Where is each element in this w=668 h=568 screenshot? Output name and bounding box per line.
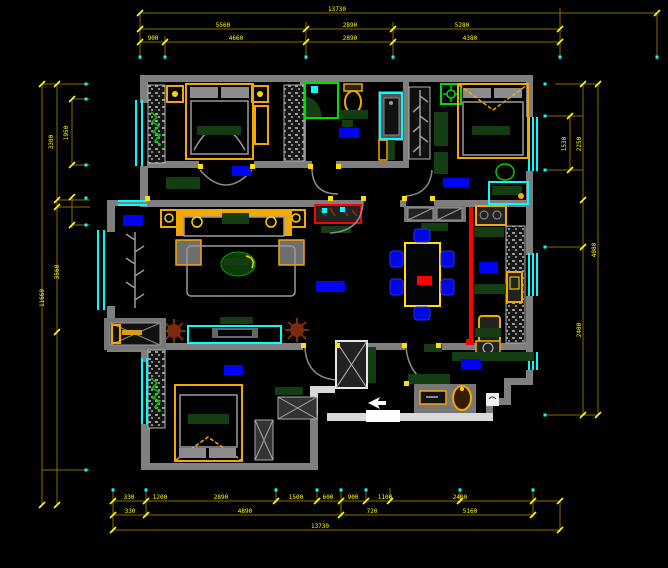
cabinet-green — [434, 112, 448, 146]
armchair-left — [176, 240, 201, 265]
bedroom-top-left — [148, 84, 268, 189]
dim-text: 720 — [367, 508, 378, 515]
cabinet-handle — [122, 330, 142, 335]
dim-text: 3560 — [54, 264, 61, 279]
floor-plan-drawing: 13730 5560 2890 5280 900 4660 2890 4380 … — [0, 0, 668, 568]
dim-text: 1530 — [561, 136, 568, 151]
toilet-icon — [345, 91, 361, 113]
sofa-swirl — [192, 217, 202, 227]
extension-dot — [544, 246, 547, 249]
counter — [474, 284, 506, 294]
door-hinge-dot — [404, 381, 409, 386]
blanket — [188, 414, 229, 424]
console-vase — [322, 208, 327, 213]
sofa-swirl — [266, 217, 276, 227]
extension-dot — [365, 489, 368, 492]
door-hinge-dot — [361, 196, 366, 201]
washer-column — [379, 140, 387, 160]
chair — [414, 307, 430, 320]
room-label-entry — [461, 359, 481, 369]
fan-hub — [447, 90, 455, 98]
chair — [414, 229, 430, 242]
room-label-kitchen — [479, 262, 498, 273]
dimension-lines-top: 13730 5560 2890 5280 900 4660 2890 4380 — [140, 6, 657, 60]
lamp-icon — [292, 214, 300, 222]
extension-dot — [139, 56, 142, 59]
dim-text: 900 — [148, 35, 159, 42]
extension-dot — [112, 489, 115, 492]
room-label-bathroom — [339, 128, 359, 138]
extension-dot — [305, 56, 308, 59]
chair — [441, 251, 454, 267]
tissue-box-icon — [486, 393, 499, 406]
sofa-arm — [284, 209, 292, 236]
bath-cabinet — [340, 110, 368, 119]
pillow — [221, 87, 249, 98]
window-kitchen-right — [529, 253, 537, 296]
room-label-bedroom2 — [443, 178, 469, 187]
desk-lamp-icon — [518, 193, 524, 199]
toilet-tank — [344, 84, 362, 91]
dim-text: 1500 — [289, 494, 304, 501]
dim-text: 600 — [323, 494, 334, 501]
bench — [408, 374, 450, 384]
pillow — [179, 448, 206, 458]
end-table-left — [161, 210, 178, 227]
wall-living-bottom — [150, 343, 303, 350]
cabinet-green — [434, 152, 448, 174]
dim-text: 13730 — [328, 6, 346, 13]
door-hinge-dot — [436, 343, 441, 348]
door-hinge-dot — [402, 196, 407, 201]
dim-text: 4890 — [238, 508, 253, 515]
dim-text: 3300 — [48, 134, 55, 149]
chair-icon — [496, 164, 514, 180]
chair — [390, 279, 403, 295]
wall-living-top — [147, 200, 307, 207]
dim-text: 13730 — [311, 523, 329, 530]
room-label-bedroom1 — [232, 166, 251, 176]
extension-dot — [532, 489, 535, 492]
room-label-hallway — [316, 281, 345, 292]
dim-text: 2250 — [576, 136, 583, 151]
pillow — [463, 88, 491, 98]
red-marker — [466, 339, 474, 345]
table-leaf — [224, 258, 250, 265]
north-arrow-icon — [368, 397, 386, 409]
tv-screen — [218, 330, 252, 336]
extension-dot — [544, 414, 547, 417]
knob — [260, 131, 263, 134]
extension-end-dots — [85, 56, 659, 492]
window-bedroom1-left — [136, 100, 142, 166]
lamp-icon — [165, 214, 173, 222]
table-centerpiece — [417, 276, 432, 285]
closet-hatch — [148, 350, 165, 428]
extension-dot — [544, 169, 547, 172]
blanket — [197, 126, 241, 135]
dim-text: 11660 — [39, 289, 46, 307]
pillow — [190, 87, 218, 98]
kitchen — [469, 206, 525, 343]
cabinet-green-strip — [368, 347, 376, 383]
wall-bedroom3-right — [310, 415, 318, 470]
door-arc-bedroom3 — [305, 348, 337, 380]
sofa-cushion — [222, 213, 249, 224]
dim-text: 2890 — [214, 494, 229, 501]
plant-brown-right — [285, 318, 309, 342]
window-living-bay — [98, 230, 104, 310]
window-bedroom3-left — [142, 358, 147, 424]
extension-dot — [544, 83, 547, 86]
extension-dot — [164, 56, 167, 59]
wall-hall-north — [336, 161, 406, 168]
dim-text: 1200 — [153, 494, 168, 501]
room-label-living — [123, 215, 143, 226]
dim-text: 2890 — [343, 22, 358, 29]
media-shelf — [220, 317, 253, 324]
wall-right — [526, 296, 533, 352]
extension-dot — [316, 489, 319, 492]
window-bedroom2-right — [529, 117, 537, 171]
extension-dot — [392, 56, 395, 59]
pillow — [209, 448, 236, 458]
wall-bedroom3-bottom — [141, 463, 318, 470]
door-hinge-dot — [328, 196, 333, 201]
console-vase — [340, 207, 345, 212]
door-hinge-dot — [198, 164, 203, 169]
extension-dot — [85, 197, 88, 200]
lamp-icon — [257, 91, 263, 97]
cad-floor-plan-canvas[interactable]: 13730 5560 2890 5280 900 4660 2890 4380 … — [0, 0, 668, 568]
dining-table — [405, 243, 440, 306]
door-arc-bathroom — [312, 168, 338, 194]
bedroom-top-right — [406, 84, 528, 204]
door-hinge-dot — [145, 196, 150, 201]
bedroom-bottom-left — [148, 348, 337, 461]
wall-bedroom1-left — [140, 75, 148, 103]
sofa-arm — [176, 209, 184, 236]
living-room — [104, 200, 363, 350]
dim-text: 330 — [124, 494, 135, 501]
door-hinge-dot — [250, 164, 255, 169]
counter — [474, 227, 504, 237]
dim-text: 4380 — [463, 35, 478, 42]
extension-dot — [340, 489, 343, 492]
extension-dot — [559, 56, 562, 59]
dim-text: 2400 — [576, 322, 583, 337]
chair — [390, 251, 403, 267]
wall-entry-bottom — [327, 413, 493, 421]
wall-top — [140, 75, 533, 82]
extension-dot — [85, 224, 88, 227]
armchair-right — [279, 240, 304, 265]
extension-dot — [656, 56, 659, 59]
dim-text: 4660 — [229, 35, 244, 42]
extension-dot — [544, 115, 547, 118]
extension-dot — [85, 83, 88, 86]
knob — [260, 115, 263, 118]
faucet-icon — [389, 101, 393, 105]
dim-text: 4080 — [591, 242, 598, 257]
storage-column-hatch — [284, 85, 304, 161]
entry-marker-block — [366, 410, 400, 422]
shower-head-icon — [311, 86, 318, 93]
extension-dot — [145, 489, 148, 492]
door-hinges — [145, 164, 441, 386]
dim-text: 1950 — [63, 125, 70, 140]
door-hinge-dot — [336, 164, 341, 169]
door-hinge-dot — [301, 343, 306, 348]
dimension-lines-left: 11660 3300 3560 1950 — [39, 84, 90, 505]
fan-blades — [443, 86, 459, 102]
dim-text: 5160 — [463, 508, 478, 515]
dim-text: 5280 — [455, 22, 470, 29]
extension-dot — [459, 489, 462, 492]
door-hinge-dot — [335, 343, 340, 348]
dim-text: 900 — [348, 494, 359, 501]
door-hinge-dot — [430, 196, 435, 201]
chair — [441, 279, 454, 295]
door-hinge-dot — [402, 343, 407, 348]
dimension-lines-bottom: 330 1200 2890 1500 600 900 1100 2400 330… — [113, 488, 560, 532]
shower-tray — [306, 96, 322, 117]
dresser — [255, 106, 268, 144]
extension-dot — [275, 489, 278, 492]
dim-text: 330 — [125, 508, 136, 515]
door-arc-bedroom2 — [406, 170, 432, 196]
room-label-bedroom3 — [224, 365, 243, 375]
faucet-icon — [460, 387, 464, 391]
blanket — [472, 126, 510, 135]
dining-room — [390, 206, 466, 320]
pillow — [494, 88, 522, 98]
coat-rack-icon — [126, 232, 144, 308]
counter — [475, 328, 501, 337]
bathroom — [284, 83, 404, 194]
door-hinge-dot — [308, 164, 313, 169]
extension-dot — [85, 164, 88, 167]
dim-text: 5560 — [216, 22, 231, 29]
shelf — [275, 387, 303, 395]
dim-text: 2890 — [343, 35, 358, 42]
dimension-lines-right: 1530 2250 2400 4080 — [545, 84, 600, 415]
wall-bedroom3-left — [141, 424, 150, 470]
extension-dot — [85, 469, 88, 472]
desk-top — [492, 186, 522, 195]
kitchen-divider-red — [469, 207, 473, 343]
bath-cabinet-small — [342, 120, 353, 127]
wall-dining-top — [400, 200, 406, 207]
extension-dot — [85, 98, 88, 101]
lamp-icon — [172, 91, 178, 97]
laundry-shelf — [388, 140, 395, 160]
shelf — [166, 177, 200, 189]
